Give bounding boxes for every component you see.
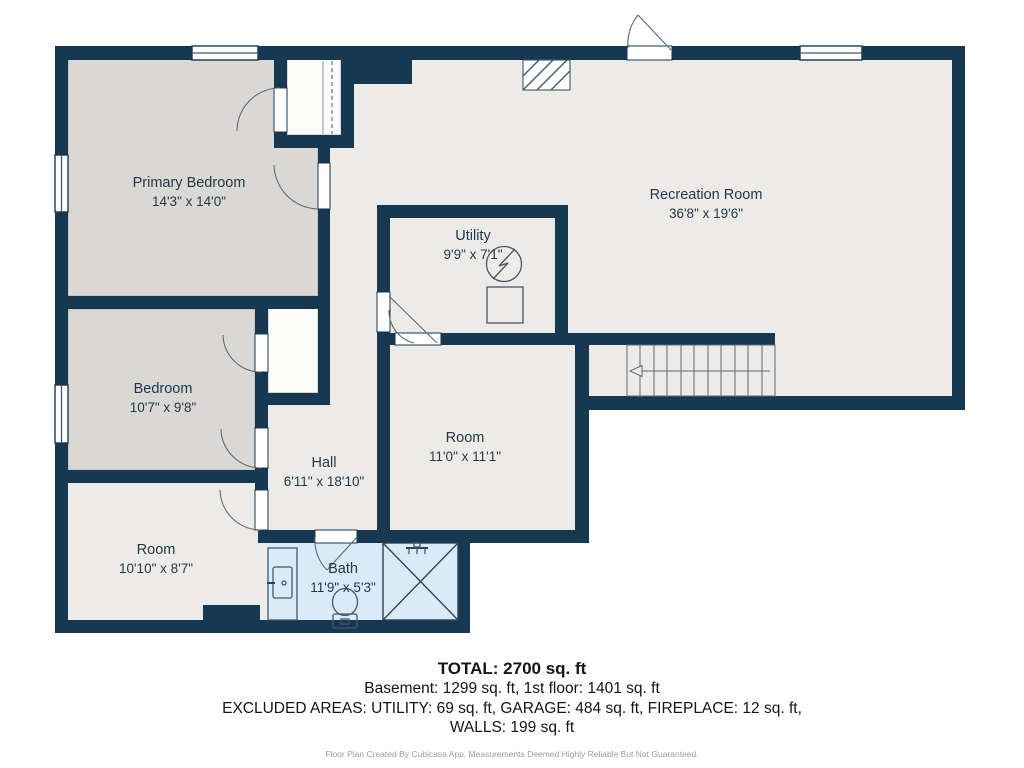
recreation-room-dims: 36'8" x 19'6"	[669, 206, 743, 221]
bedroom-door-opening	[255, 428, 268, 468]
door-swing-icon	[628, 15, 671, 50]
window-icon	[55, 385, 68, 443]
floor-plan-drawing: Primary Bedroom 14'3" x 14'0" Recreation…	[0, 0, 1024, 768]
area-summary: TOTAL: 2700 sq. ft Basement: 1299 sq. ft…	[0, 659, 1024, 759]
room-southwest-dims: 10'10" x 8'7"	[119, 561, 193, 576]
wall-utility-top	[377, 205, 568, 218]
primary-closet-door-opening	[274, 88, 287, 132]
utility-label: Utility	[455, 228, 491, 244]
wall-mid-south	[258, 530, 589, 543]
bath-door-opening	[315, 530, 357, 543]
primary-door-opening	[318, 163, 330, 209]
bath-label: Bath	[328, 561, 358, 577]
wall-room-center-right	[575, 333, 589, 543]
window-icon	[192, 46, 258, 60]
wall-south-east	[577, 396, 965, 410]
room-center-dims: 11'0" x 11'1"	[429, 449, 501, 464]
floor-areas-text: Basement: 1299 sq. ft, 1st floor: 1401 s…	[0, 679, 1024, 699]
bath-dims: 11'9" x 5'3"	[310, 580, 376, 595]
wall-right	[952, 46, 965, 410]
wall-shower-right	[458, 530, 470, 633]
wall-primary-bottom	[55, 296, 330, 309]
bedroom-closet-door-opening	[255, 334, 268, 372]
bedroom-dims: 10'7" x 9'8"	[130, 400, 197, 415]
window-icon	[55, 155, 68, 212]
room-center-label: Room	[446, 430, 485, 446]
disclaimer-text: Floor Plan Created By Cubicasa App. Meas…	[0, 749, 1024, 759]
primary-bedroom-label: Primary Bedroom	[133, 175, 246, 191]
room-southwest-label: Room	[137, 542, 176, 558]
fireplace-icon	[523, 60, 570, 90]
recreation-room-label: Recreation Room	[650, 187, 763, 203]
excluded-areas-text: EXCLUDED AREAS: UTILITY: 69 sq. ft, GARA…	[0, 699, 1024, 719]
wall-south-west	[55, 620, 470, 633]
window-icon	[800, 46, 862, 60]
bedroom-closet-floor	[268, 308, 318, 393]
wall-bedroom-bottom	[55, 470, 268, 483]
wall-notch	[203, 605, 260, 633]
wall-hall-east	[377, 205, 390, 543]
exterior-door-opening	[627, 46, 672, 60]
walls-area-text: WALLS: 199 sq. ft	[0, 718, 1024, 738]
total-area-text: TOTAL: 2700 sq. ft	[0, 659, 1024, 679]
floor-plan-page: Primary Bedroom 14'3" x 14'0" Recreation…	[0, 0, 1024, 768]
wall-left	[55, 46, 68, 633]
utility-door-opening-south	[395, 333, 441, 345]
bedroom-label: Bedroom	[134, 381, 193, 397]
wall-top-chunk	[341, 46, 412, 84]
wall-utility-right	[555, 205, 568, 345]
primary-bedroom-dims: 14'3" x 14'0"	[152, 194, 226, 209]
wall-bedroom-closet-bottom	[255, 393, 330, 405]
utility-dims: 9'9" x 7'1"	[443, 247, 502, 262]
room-southwest-door-opening	[255, 490, 268, 530]
utility-door-opening-west	[377, 292, 390, 332]
primary-closet-floor	[287, 59, 341, 135]
hall-label: Hall	[312, 455, 337, 471]
hall-dims: 6'11" x 18'10"	[284, 474, 365, 489]
